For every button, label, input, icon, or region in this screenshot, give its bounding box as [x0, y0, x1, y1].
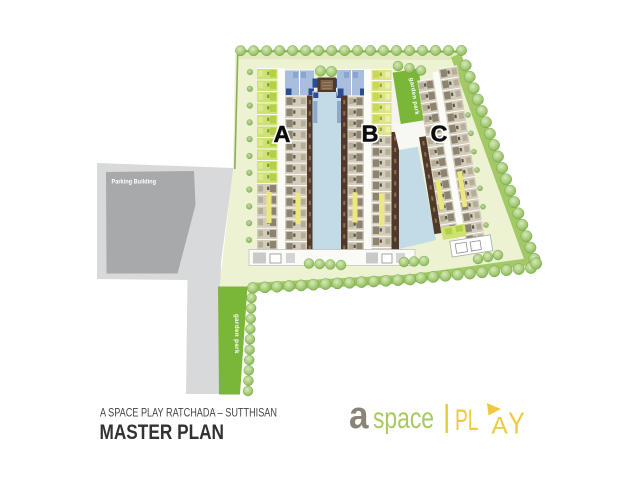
svg-text:MASTER PLAN: MASTER PLAN: [100, 420, 225, 444]
svg-text:A: A: [274, 121, 291, 147]
svg-text:garden park: garden park: [233, 314, 240, 354]
svg-text:B: B: [362, 121, 379, 147]
svg-text:A SPACE PLAY RATCHADA – SUTTHI: A SPACE PLAY RATCHADA – SUTTHISAN: [100, 406, 277, 420]
svg-text:Parking Building: Parking Building: [112, 179, 157, 186]
svg-text:Y: Y: [508, 407, 525, 441]
svg-text:PL: PL: [455, 404, 479, 437]
svg-text:C: C: [431, 121, 448, 147]
svg-text:a: a: [349, 395, 369, 437]
svg-text:A: A: [491, 413, 507, 440]
svg-text:space: space: [373, 402, 434, 435]
